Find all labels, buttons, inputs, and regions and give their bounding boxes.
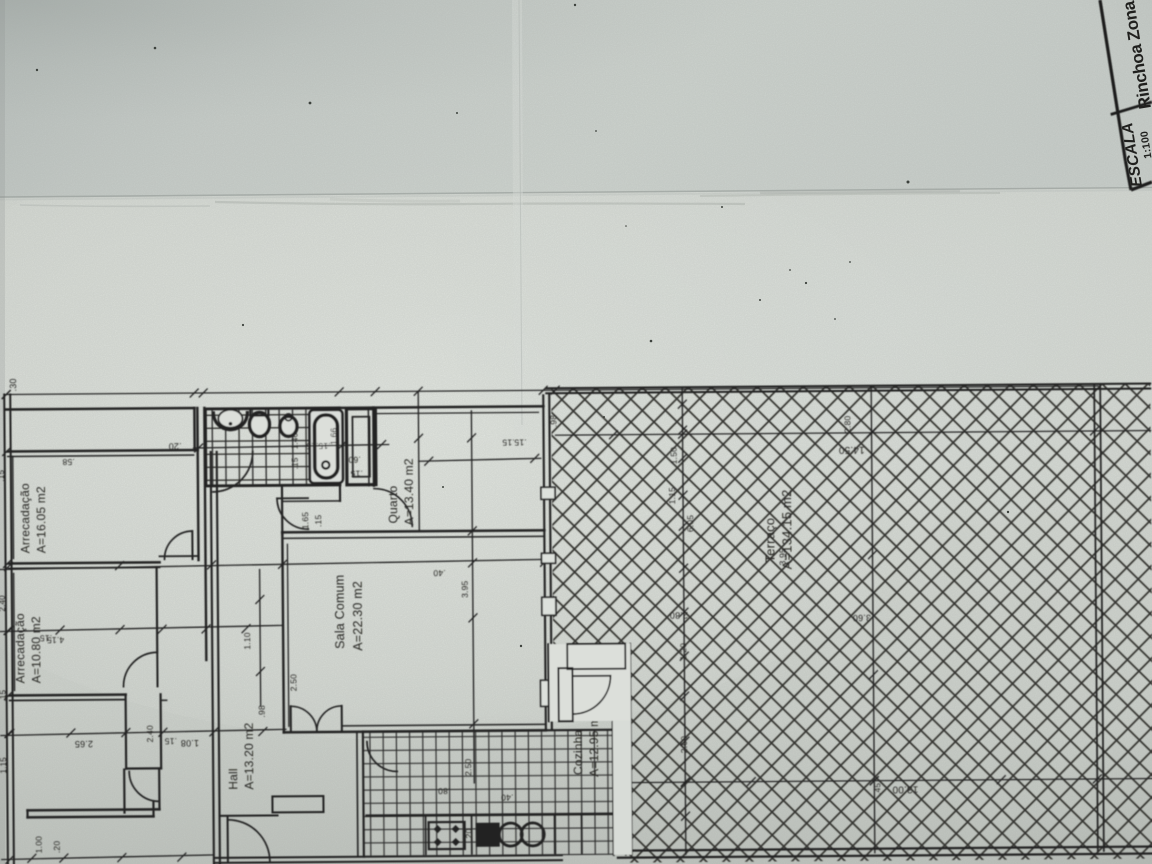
svg-text:.40: .40 bbox=[433, 568, 446, 578]
svg-text:.15: .15 bbox=[313, 515, 323, 528]
svg-text:.30: .30 bbox=[8, 378, 18, 391]
svg-text:1.10: 1.10 bbox=[242, 632, 252, 649]
svg-text:13.00: 13.00 bbox=[892, 783, 918, 794]
svg-text:.15: .15 bbox=[318, 441, 331, 451]
svg-text:3.95: 3.95 bbox=[777, 548, 787, 565]
svg-text:.60: .60 bbox=[348, 455, 361, 465]
svg-text:2.40: 2.40 bbox=[145, 725, 155, 742]
svg-text:1.08: 1.08 bbox=[181, 738, 199, 748]
svg-text:2.40: 2.40 bbox=[0, 595, 7, 612]
svg-text:.15: .15 bbox=[0, 689, 8, 701]
svg-text:.15: .15 bbox=[350, 469, 363, 479]
svg-text:A=16.05 m2: A=16.05 m2 bbox=[34, 486, 49, 553]
svg-text:2.50: 2.50 bbox=[288, 674, 298, 691]
svg-text:6.05: 6.05 bbox=[685, 515, 695, 532]
svg-text:.15: .15 bbox=[514, 437, 527, 447]
svg-text:Arrecadação: Arrecadação bbox=[13, 613, 28, 683]
svg-text:.20: .20 bbox=[168, 441, 181, 451]
svg-text:A=13.40 m2: A=13.40 m2 bbox=[402, 458, 417, 525]
svg-text:2.80: 2.80 bbox=[842, 415, 852, 432]
svg-text:.15: .15 bbox=[0, 469, 6, 481]
svg-text:Hall: Hall bbox=[226, 768, 240, 790]
svg-text:2.80: 2.80 bbox=[670, 610, 688, 620]
svg-text:.45: .45 bbox=[873, 783, 882, 795]
svg-text:.98: .98 bbox=[257, 705, 267, 718]
svg-text:1.65: 1.65 bbox=[300, 512, 310, 529]
svg-text:1.15: 1.15 bbox=[0, 757, 8, 774]
svg-text:1.50: 1.50 bbox=[669, 447, 679, 464]
svg-text:2.65: 2.65 bbox=[75, 739, 93, 749]
svg-text:Sala Comum: Sala Comum bbox=[333, 575, 348, 649]
svg-text:1.00: 1.00 bbox=[34, 836, 44, 853]
svg-text:2.50: 2.50 bbox=[463, 758, 473, 775]
svg-text:.80: .80 bbox=[438, 786, 451, 796]
svg-text:2.60: 2.60 bbox=[679, 736, 689, 753]
svg-text:Terraço: Terraço bbox=[762, 518, 777, 563]
svg-text:3.60: 3.60 bbox=[853, 613, 871, 623]
svg-text:3.95: 3.95 bbox=[460, 580, 470, 597]
svg-text:Arrecadação: Arrecadação bbox=[18, 483, 33, 553]
svg-text:A=13.20 m2: A=13.20 m2 bbox=[242, 722, 257, 789]
svg-text:.15: .15 bbox=[164, 736, 177, 746]
svg-text:1.15: 1.15 bbox=[667, 487, 677, 504]
svg-text:.15: .15 bbox=[502, 438, 515, 448]
svg-text:.20: .20 bbox=[464, 828, 474, 841]
svg-text:Cozinha: Cozinha bbox=[571, 729, 585, 775]
svg-text:.40: .40 bbox=[501, 793, 514, 803]
svg-text:.20: .20 bbox=[52, 841, 62, 854]
svg-text:A=10.80 m2: A=10.80 m2 bbox=[29, 616, 44, 683]
svg-text:1.20: 1.20 bbox=[678, 643, 688, 660]
svg-text:4.15: 4.15 bbox=[47, 635, 64, 645]
svg-text:A=22.30 m2: A=22.30 m2 bbox=[351, 581, 366, 651]
svg-text:.15: .15 bbox=[306, 441, 319, 451]
svg-text:.58: .58 bbox=[62, 457, 75, 467]
svg-text:14.50: 14.50 bbox=[838, 444, 864, 455]
